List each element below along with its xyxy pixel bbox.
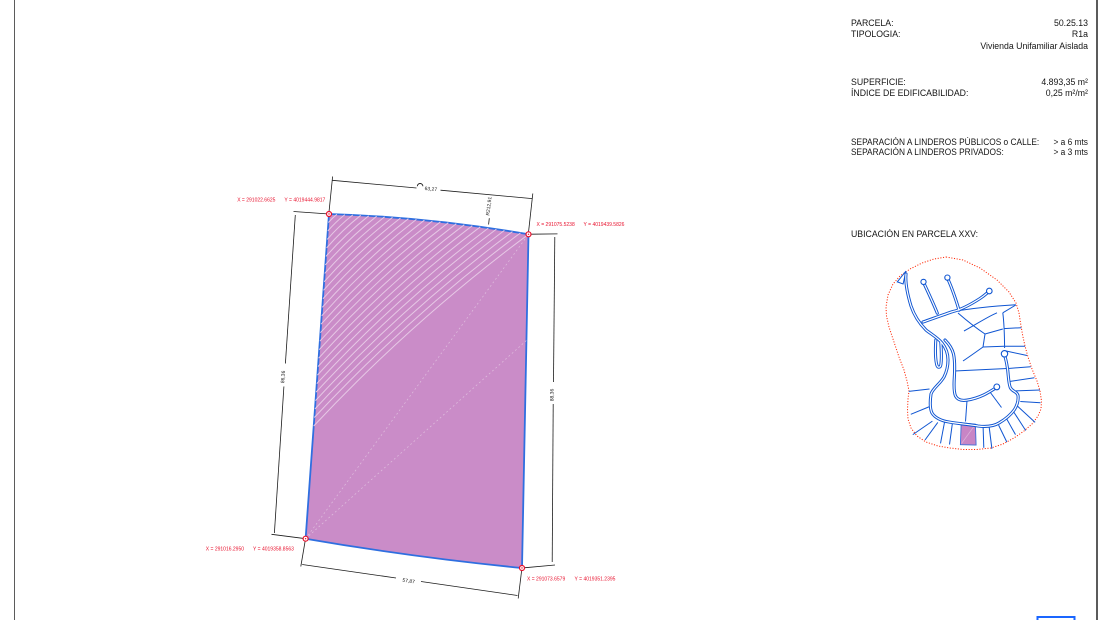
svg-text:X = 291022.6625: X = 291022.6625 — [237, 198, 275, 204]
svg-text:86,36: 86,36 — [280, 370, 287, 383]
svg-text:Y = 4019444.9817: Y = 4019444.9817 — [284, 198, 325, 204]
svg-text:R212,91: R212,91 — [485, 196, 493, 216]
svg-text:88,36: 88,36 — [549, 388, 555, 401]
svg-text:X = 291016.2950: X = 291016.2950 — [206, 547, 244, 553]
svg-text:63,27: 63,27 — [424, 186, 437, 193]
svg-text:X = 291073.6579: X = 291073.6579 — [527, 577, 565, 583]
svg-text:57,87: 57,87 — [402, 578, 415, 586]
svg-text:Y = 4019358.8563: Y = 4019358.8563 — [253, 547, 294, 553]
svg-text:X = 291075.5238: X = 291075.5238 — [537, 222, 575, 228]
svg-text:Y = 4019439.5826: Y = 4019439.5826 — [584, 222, 625, 228]
svg-text:Y = 4019351.2395: Y = 4019351.2395 — [575, 577, 616, 583]
